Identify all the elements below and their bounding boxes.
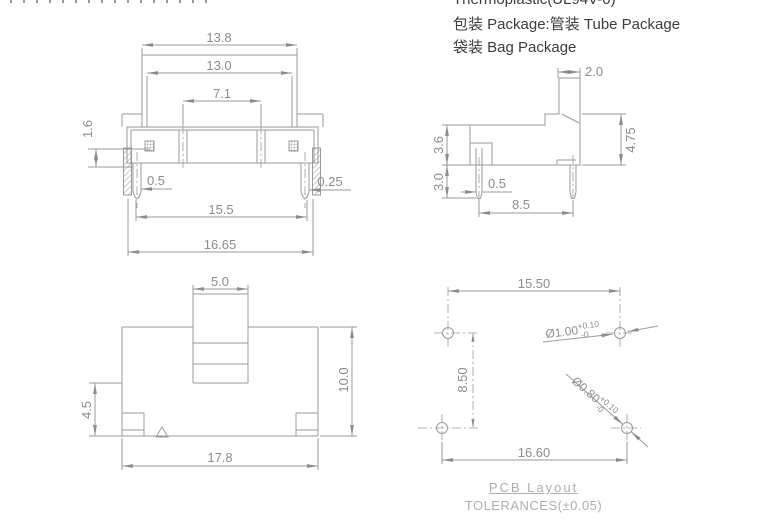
dim-front-right-pin-width: 0.25 xyxy=(317,174,342,189)
dim-side-pin-length: 3.0 xyxy=(431,173,446,191)
dim-side-overall-height: 4.75 xyxy=(623,127,638,152)
pcb-layout-title: PCB Layout xyxy=(431,480,636,495)
side-view-dimensions: 2.0 4.75 3.6 3.0 0.5 8.5 xyxy=(431,64,638,217)
terminal-right xyxy=(289,141,298,151)
dim-front-pin-span: 15.5 xyxy=(208,202,233,217)
dim-front-knob-width: 13.0 xyxy=(206,58,231,73)
pcb-hole-large-label: Ø1.00+0.10-0 xyxy=(545,319,601,344)
pcb-hole-callout-large: Ø1.00+0.10-0 xyxy=(543,319,658,344)
dim-front-overall-width: 16.65 xyxy=(204,237,237,252)
pcb-hole-callout-small: Ø0.80+0.10-0 xyxy=(566,372,648,447)
dim-side-actuator-width: 2.0 xyxy=(585,64,603,79)
side-view-outline xyxy=(470,78,580,210)
front-view: 13.8 13.0 7.1 1.6 0.5 0.25 15.5 16.65 xyxy=(80,30,351,256)
front-view-dimensions: 13.8 13.0 7.1 1.6 0.5 0.25 15.5 16.65 xyxy=(80,30,351,256)
dim-top-knob-offset: 4.5 xyxy=(79,401,94,419)
dim-front-terminal-height: 1.6 xyxy=(80,120,95,138)
pcb-dimensions: 15.50 8.50 16.60 xyxy=(442,276,627,460)
dim-front-pole-pitch: 7.1 xyxy=(213,86,231,101)
dim-pcb-bottom-pitch: 16.60 xyxy=(518,445,551,460)
dim-top-body-length: 17.8 xyxy=(207,450,232,465)
drawing-sheet: Thermoplastic(UL94V-0) 包装 Package:管装 Tub… xyxy=(0,0,780,531)
pcb-layout-view: 15.50 8.50 16.60 Ø1.00+0.10-0 Ø0.80+0.10… xyxy=(418,276,658,464)
technical-drawing: 13.8 13.0 7.1 1.6 0.5 0.25 15.5 16.65 xyxy=(0,0,780,531)
dim-side-pin-pitch: 8.5 xyxy=(512,197,530,212)
dim-top-body-depth: 10.0 xyxy=(336,367,351,392)
dim-side-pin-width: 0.5 xyxy=(488,176,506,191)
dim-pcb-row-pitch: 8.50 xyxy=(455,367,470,392)
pcb-tolerance-note: TOLERANCES(±0.05) xyxy=(431,498,636,513)
dim-side-body-height: 3.6 xyxy=(431,136,446,154)
top-view: 5.0 10.0 4.5 17.8 xyxy=(79,274,357,470)
clip-left xyxy=(124,148,132,195)
side-view: 2.0 4.75 3.6 3.0 0.5 8.5 xyxy=(431,64,638,217)
pcb-caption: PCB Layout TOLERANCES(±0.05) xyxy=(431,480,636,513)
dim-pcb-top-pitch: 15.50 xyxy=(518,276,551,291)
dim-top-knob-width: 5.0 xyxy=(211,274,229,289)
dim-front-top-width: 13.8 xyxy=(206,30,231,45)
top-view-outline xyxy=(122,294,318,437)
dim-front-left-pin-width: 0.5 xyxy=(147,173,165,188)
pcb-holes xyxy=(418,287,641,464)
top-view-dimensions: 5.0 10.0 4.5 17.8 xyxy=(79,274,357,470)
